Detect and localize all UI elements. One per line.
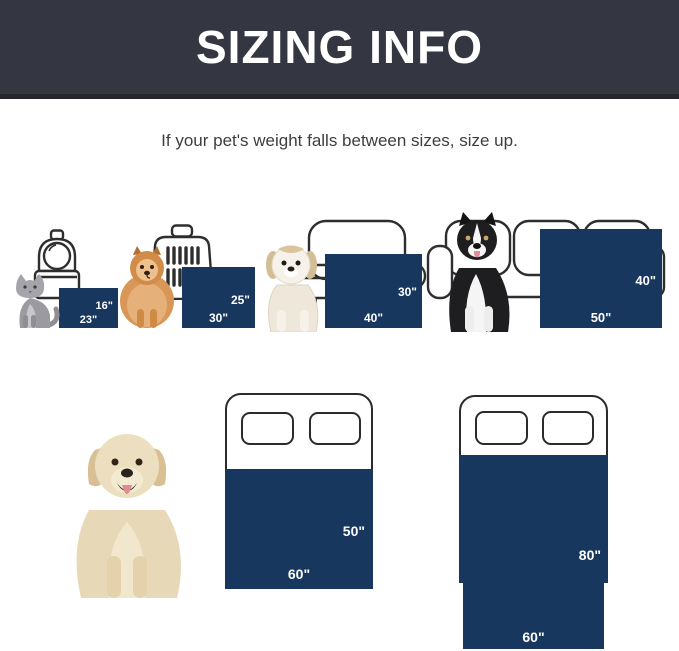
height-label: 80" [579,547,601,563]
page-title: SIZING INFO [196,20,483,74]
bed-icon-60x80: 80" [459,395,608,583]
bed-icon-60x50: 50" 60" [225,393,373,589]
height-label: 16" [96,300,113,312]
cat-image [10,267,62,328]
header-banner: SIZING INFO [0,0,679,99]
width-label: 50" [540,310,662,325]
height-label: 25" [231,293,250,307]
pillow-icon [542,411,594,445]
size-swatch-40x30: 30" 40" [325,254,422,328]
sizing-info-page: SIZING INFO If your pet's weight falls b… [0,0,679,651]
height-label: 40" [635,273,656,288]
pillow-icon [309,412,361,445]
puppy-image [260,240,326,332]
blanket-swatch-60x80 [459,455,608,583]
pillow-icon [241,412,294,445]
width-label: 40" [325,311,422,325]
height-label: 50" [343,523,365,539]
blanket-overhang-swatch: 60" [463,581,604,649]
size-swatch-23x16: 16" 23" [59,288,118,328]
size-swatch-30x25: 25" 30" [182,267,255,328]
width-label: 60" [463,629,604,645]
height-label: 30" [398,285,417,299]
width-label: 60" [227,566,371,582]
size-swatch-50x40: 40" 50" [540,229,662,328]
pomeranian-image [118,245,176,328]
golden-retriever-image [58,425,200,598]
sizing-note: If your pet's weight falls between sizes… [0,131,679,151]
border-collie-image [436,211,522,332]
width-label: 30" [182,311,255,325]
pillow-icon [475,411,528,445]
width-label: 23" [59,314,118,326]
